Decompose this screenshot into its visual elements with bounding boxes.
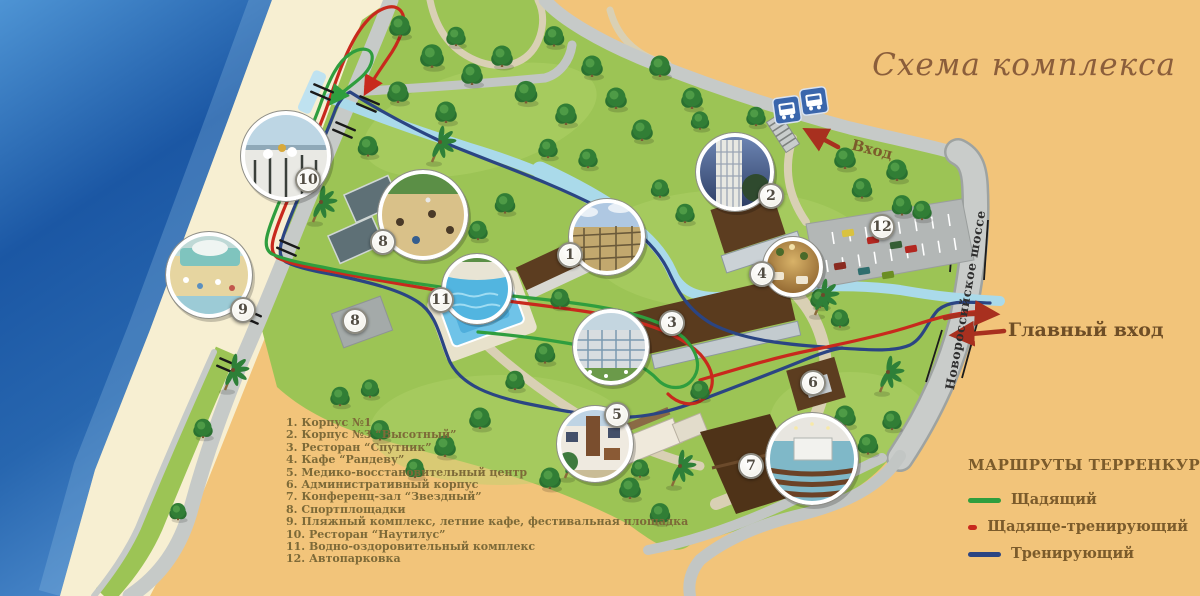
map-marker-4: 4 [749, 261, 775, 287]
map-marker-6: 6 [800, 370, 826, 396]
map-marker-7: 7 [738, 453, 764, 479]
markers-layer: 1234567889101112 [0, 0, 1200, 596]
map-marker-2: 2 [758, 183, 784, 209]
map-marker-5: 5 [604, 402, 630, 428]
resort-complex-map: Схема комплекса 1. Корпус №12. Корпус №3… [0, 0, 1200, 596]
map-marker-8: 8 [342, 308, 368, 334]
map-marker-1: 1 [557, 242, 583, 268]
map-marker-9: 9 [230, 297, 256, 323]
map-marker-11: 11 [428, 287, 454, 313]
map-marker-12: 12 [869, 214, 895, 240]
map-marker-8: 8 [370, 229, 396, 255]
map-marker-10: 10 [295, 167, 321, 193]
map-marker-3: 3 [659, 310, 685, 336]
